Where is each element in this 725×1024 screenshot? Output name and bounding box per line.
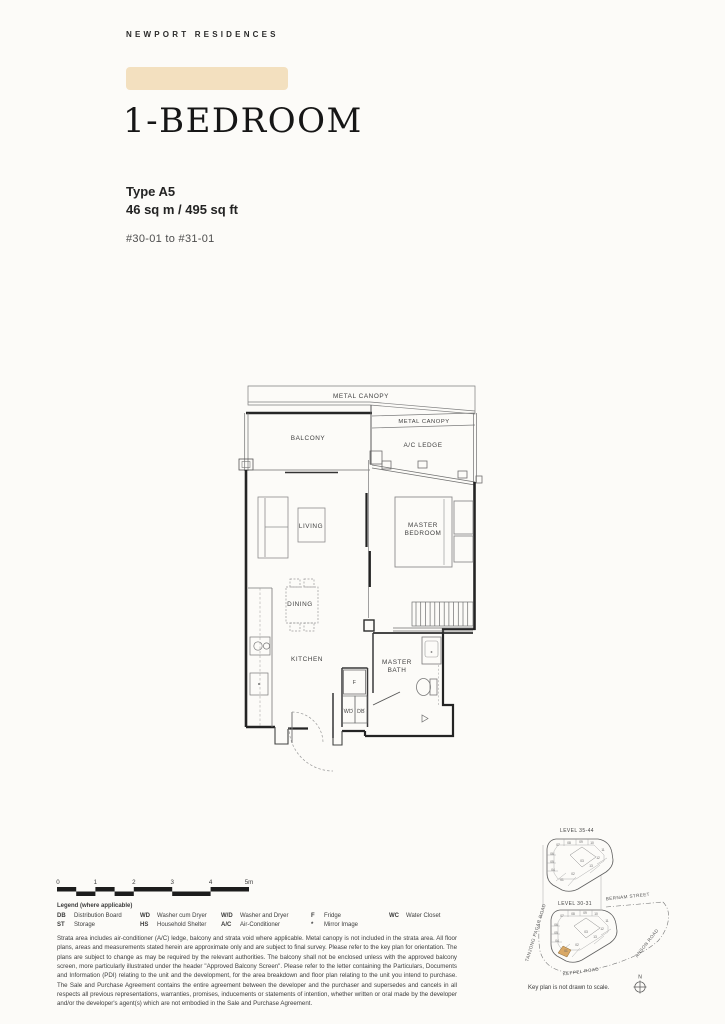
legend-abbr: F: [311, 913, 315, 919]
dining-label: DINING: [287, 601, 313, 608]
keyplan-unit-number: 13: [589, 864, 593, 868]
legend-abbr: DB: [57, 913, 66, 919]
keyplan-building-lower: 01020304050607080910111213: [551, 910, 617, 962]
accent-bar: [126, 67, 288, 90]
keyplan-unit-number: 13: [593, 935, 597, 939]
keyplan-unit-number: 05: [550, 860, 554, 864]
entrance-doors: [289, 693, 333, 771]
master-bath-label-2: BATH: [388, 667, 407, 674]
keyplan-unit-number: 04: [555, 939, 559, 943]
legend: Legend (where applicable) DB Distributio…: [57, 903, 537, 933]
scale-tick-3: 3: [170, 879, 174, 886]
legend-abbr: WD: [140, 913, 150, 919]
keyplan-lower-level-label: LEVEL 30-31: [558, 901, 592, 907]
keyplan-unit-number: 10: [590, 841, 594, 845]
legend-desc: Distribution Board: [74, 913, 122, 919]
keyplan-unit-number: 03: [580, 859, 584, 863]
scale-tick-1: 1: [94, 879, 98, 886]
metal-canopy-top: [248, 386, 475, 414]
street-anson: ANSON ROAD: [634, 928, 660, 959]
keyplan-unit-number: 01: [564, 949, 568, 953]
legend-desc: Air-Conditioner: [240, 922, 280, 928]
keyplan-unit-number: 04: [551, 868, 555, 872]
ac-ledge-edge: [370, 451, 482, 485]
keyplan-unit-number: 09: [583, 911, 587, 915]
unit-type: Type A5: [126, 183, 238, 201]
living-label: LIVING: [299, 523, 323, 530]
keyplan-building-upper: 01020304050607080910111213: [547, 839, 613, 891]
keyplan-unit-number: 11: [601, 848, 605, 852]
scale-bar-segments: [57, 887, 249, 896]
legend-abbr: A/C: [221, 922, 231, 928]
master-bedroom-label-2: BEDROOM: [405, 530, 442, 537]
keyplan-unit-number: 12: [600, 927, 604, 931]
master-bath-label-1: MASTER: [382, 659, 412, 666]
keyplan-unit-number: 10: [594, 912, 598, 916]
legend-abbr: *: [311, 922, 313, 928]
master-bath: [373, 633, 473, 722]
legend-desc: Mirror Image: [324, 922, 358, 928]
balcony-label: BALCONY: [291, 435, 326, 442]
street-tanjong-pagar: TANJONG PAGAR ROAD: [524, 903, 547, 962]
fridge-label: F: [353, 680, 356, 686]
keyplan-unit-number: 06: [550, 852, 554, 856]
ac-ledge-label: A/C LEDGE: [403, 442, 442, 449]
keyplan-unit-number: 03: [584, 930, 588, 934]
scale-bar: 0 1 2 3 4 5m: [55, 876, 255, 900]
legend-abbr: HS: [140, 922, 148, 928]
legend-abbr: W/D: [221, 913, 233, 919]
legend-desc: Household Shelter: [157, 922, 206, 928]
keyplan-unit-number: 08: [567, 841, 571, 845]
legend-abbr: WC: [389, 913, 399, 919]
keyplan-unit-number: 02: [571, 872, 575, 876]
keyplan-unit-number: 07: [556, 843, 560, 847]
master-bedroom-label-1: MASTER: [408, 522, 438, 529]
disclaimer-text: Strata area includes air-conditioner (A/…: [57, 934, 457, 1009]
key-plan: 01020304050607080910111213 LEVEL 35-44 0…: [520, 815, 725, 1010]
db-label: DB: [357, 709, 365, 715]
keyplan-unit-number: 01: [560, 878, 564, 882]
legend-title: Legend (where applicable): [57, 903, 132, 909]
living-bedroom-divider: [364, 460, 374, 631]
legend-abbr: ST: [57, 922, 65, 928]
keyplan-note: Key plan is not drawn to scale.: [528, 985, 610, 991]
legend-desc: Fridge: [324, 913, 341, 919]
keyplan-unit-number: 11: [605, 919, 609, 923]
brand-name: NEWPORT RESIDENCES: [126, 30, 279, 39]
keyplan-unit-number: 07: [560, 914, 564, 918]
unit-stacks: #30-01 to #31-01: [126, 233, 215, 245]
compass-icon: [634, 981, 647, 994]
legend-desc: Storage: [74, 922, 95, 928]
page-title: 1-BEDROOM: [123, 101, 363, 141]
keyplan-unit-number: 12: [596, 856, 600, 860]
keyplan-unit-number: 06: [554, 923, 558, 927]
legend-desc: Washer cum Dryer: [157, 913, 207, 919]
keyplan-unit-number: 09: [579, 840, 583, 844]
scale-tick-0: 0: [56, 879, 60, 886]
keyplan-unit-number: 08: [571, 912, 575, 916]
street-bernam: BERNAM STREET: [606, 892, 651, 902]
kitchen-fittings: [248, 588, 272, 727]
kitchen-label: KITCHEN: [291, 656, 323, 663]
floorplan-page: NEWPORT RESIDENCES 1-BEDROOM Type A5 46 …: [0, 0, 725, 1024]
compass-north-label: N: [638, 975, 642, 981]
unit-area: 46 sq m / 495 sq ft: [126, 201, 238, 219]
floorplan-drawing: METAL CANOPY METAL CANOPY A/C LEDGE: [230, 375, 500, 775]
legend-desc: Washer and Dryer: [240, 913, 288, 919]
service-block: [342, 668, 368, 727]
unit-type-block: Type A5 46 sq m / 495 sq ft: [126, 183, 238, 219]
scale-tick-2: 2: [132, 879, 136, 886]
keyplan-unit-number: 05: [554, 931, 558, 935]
wd-label: WD: [344, 709, 353, 715]
street-keppel: KEPPEL ROAD: [562, 966, 599, 976]
legend-desc: Water Closet: [406, 913, 440, 919]
scale-tick-5: 5m: [245, 879, 254, 886]
metal-canopy-top-label: METAL CANOPY: [333, 393, 389, 400]
keyplan-unit-number: 02: [575, 943, 579, 947]
outer-walls: [246, 470, 476, 745]
keyplan-upper-level-label: LEVEL 35-44: [560, 828, 594, 834]
wardrobe-hatch: [393, 602, 473, 631]
scale-tick-4: 4: [209, 879, 213, 886]
metal-canopy-2-label: METAL CANOPY: [398, 419, 449, 425]
